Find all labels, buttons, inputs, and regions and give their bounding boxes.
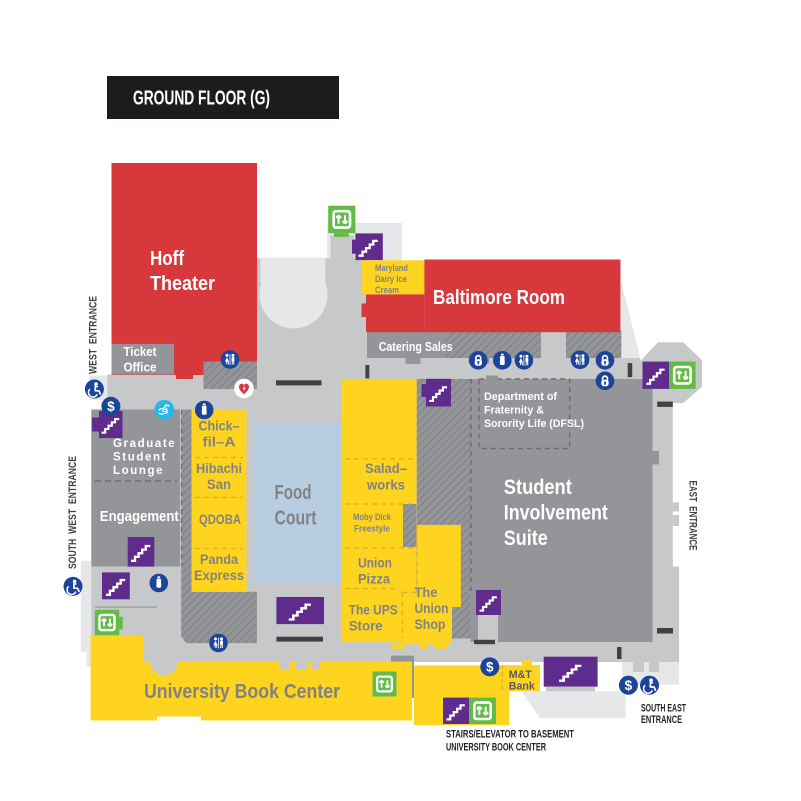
svg-text:Store: Store [349, 619, 383, 634]
svg-text:ENTRANCE: ENTRANCE [641, 714, 682, 726]
svg-text:Ticket: Ticket [124, 345, 158, 359]
svg-text:fil–A: fil–A [203, 435, 236, 450]
svg-text:Freestyle: Freestyle [354, 524, 390, 535]
svg-text:Cream: Cream [375, 285, 399, 296]
svg-text:Express: Express [194, 568, 244, 583]
svg-text:Hoff: Hoff [150, 248, 184, 270]
svg-text:Court: Court [275, 508, 317, 530]
svg-text:STAIRS/ELEVATOR TO BASEMENT: STAIRS/ELEVATOR TO BASEMENT [446, 729, 574, 741]
svg-text:Department of: Department of [484, 391, 557, 403]
svg-text:Shop: Shop [415, 617, 446, 632]
svg-text:SOUTH WEST ENTRANCE: SOUTH WEST ENTRANCE [67, 456, 79, 569]
svg-text:Moby Dick: Moby Dick [353, 512, 392, 523]
svg-text:QDOBA: QDOBA [199, 512, 241, 527]
svg-text:Involvement: Involvement [504, 502, 608, 525]
svg-text:Sorority Life (DFSL): Sorority Life (DFSL) [484, 418, 584, 430]
svg-text:Theater: Theater [150, 273, 215, 295]
svg-text:Union: Union [358, 556, 392, 571]
svg-text:Lounge: Lounge [113, 465, 164, 477]
svg-text:Salad–: Salad– [365, 461, 407, 476]
svg-text:GROUND FLOOR (G): GROUND FLOOR (G) [133, 88, 270, 110]
svg-text:Baltimore Room: Baltimore Room [433, 287, 565, 309]
svg-text:M&T: M&T [509, 669, 532, 681]
svg-text:Dairy Ice: Dairy Ice [375, 274, 407, 285]
svg-text:Food: Food [275, 482, 312, 504]
svg-text:Pizza: Pizza [358, 572, 390, 587]
svg-text:Fraternity &: Fraternity & [484, 405, 544, 417]
svg-text:Suite: Suite [504, 527, 548, 550]
svg-text:The UPS: The UPS [349, 603, 398, 618]
svg-text:UNIVERSITY BOOK CENTER: UNIVERSITY BOOK CENTER [446, 742, 546, 754]
svg-text:Graduate: Graduate [113, 438, 176, 450]
svg-text:Office: Office [124, 361, 157, 375]
svg-text:Student: Student [113, 452, 167, 464]
svg-text:Hibachi: Hibachi [196, 461, 242, 476]
svg-text:San: San [207, 477, 231, 492]
svg-text:WEST ENTRANCE: WEST ENTRANCE [87, 296, 99, 374]
svg-text:Student: Student [504, 476, 572, 499]
svg-text:EAST ENTRANCE: EAST ENTRANCE [687, 481, 699, 551]
svg-text:Bank: Bank [509, 681, 536, 693]
svg-text:The: The [415, 585, 438, 600]
svg-text:Chick–: Chick– [199, 419, 240, 434]
svg-text:Maryland: Maryland [375, 263, 408, 274]
svg-text:Catering Sales: Catering Sales [379, 340, 453, 354]
svg-text:works: works [366, 478, 405, 493]
svg-text:SOUTH EAST: SOUTH EAST [641, 703, 686, 715]
svg-text:Union: Union [415, 601, 449, 616]
svg-text:Engagement: Engagement [100, 509, 179, 525]
svg-text:University Book Center: University Book Center [144, 681, 340, 703]
svg-text:Panda: Panda [200, 552, 238, 567]
